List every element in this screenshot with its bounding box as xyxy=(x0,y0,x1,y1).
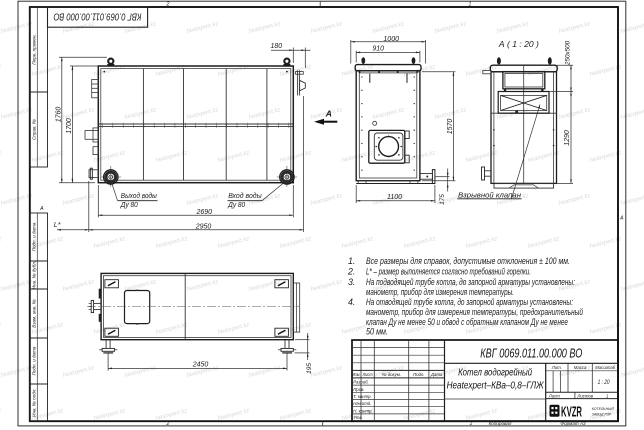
svg-text:Масштаб: Масштаб xyxy=(595,365,616,370)
svg-text:heatxpert.kz: heatxpert.kz xyxy=(620,279,644,293)
svg-text:heatxpert.kz: heatxpert.kz xyxy=(465,408,498,422)
svg-text:heatxpert.kz: heatxpert.kz xyxy=(310,21,343,35)
svg-text:Heatexpert–КВа–0,8–ГЛЖ: Heatexpert–КВа–0,8–ГЛЖ xyxy=(447,381,545,392)
svg-text:heatxpert.kz: heatxpert.kz xyxy=(496,107,529,121)
svg-text:heatxpert.kz: heatxpert.kz xyxy=(310,279,343,293)
svg-text:А: А xyxy=(619,216,624,222)
svg-text:heatxpert.kz: heatxpert.kz xyxy=(248,279,281,293)
svg-text:2690: 2690 xyxy=(196,209,213,216)
svg-text:heatxpert.kz: heatxpert.kz xyxy=(155,236,188,250)
svg-text:Выход воды: Выход воды xyxy=(121,192,158,200)
svg-text:1: 1 xyxy=(470,421,473,427)
svg-text:heatxpert.kz: heatxpert.kz xyxy=(465,236,498,250)
svg-text:heatxpert.kz: heatxpert.kz xyxy=(0,279,33,293)
svg-text:heatxpert.kz: heatxpert.kz xyxy=(279,408,312,422)
svg-text:Изм.: Изм. xyxy=(353,372,361,377)
svg-text:А: А xyxy=(39,206,44,212)
svg-text:heatxpert.kz: heatxpert.kz xyxy=(0,193,33,207)
svg-text:heatxpert.kz: heatxpert.kz xyxy=(186,279,219,293)
svg-text:2450: 2450 xyxy=(192,361,209,368)
svg-text:1000: 1000 xyxy=(383,36,399,43)
svg-text:heatxpert.kz: heatxpert.kz xyxy=(0,322,2,336)
svg-text:Все размеры для справок, допус: Все размеры для справок, допустимые откл… xyxy=(366,256,570,266)
svg-text:2.: 2. xyxy=(347,267,355,277)
svg-text:heatxpert.kz: heatxpert.kz xyxy=(217,150,250,164)
svg-text:KVZR: KVZR xyxy=(561,405,582,421)
svg-text:heatxpert.kz: heatxpert.kz xyxy=(434,21,467,35)
svg-text:Взрывной клапан: Взрывной клапан xyxy=(458,191,521,199)
svg-text:heatxpert.kz: heatxpert.kz xyxy=(186,107,219,121)
svg-text:1.: 1. xyxy=(348,256,355,266)
svg-text:heatxpert.kz: heatxpert.kz xyxy=(403,408,436,422)
svg-text:heatxpert.kz: heatxpert.kz xyxy=(558,193,591,207)
svg-text:heatxpert.kz: heatxpert.kz xyxy=(155,322,188,336)
svg-text:Подп. и дата: Подп. и дата xyxy=(32,346,37,375)
svg-text:heatxpert.kz: heatxpert.kz xyxy=(217,236,250,250)
svg-text:heatxpert.kz: heatxpert.kz xyxy=(93,408,126,422)
svg-text:Ду 80: Ду 80 xyxy=(227,202,245,209)
svg-text:манометр, прибор для измерения: манометр, прибор для измерения температу… xyxy=(366,287,514,297)
svg-text:L* – размер выполняется соглас: L* – размер выполняется согласно требова… xyxy=(366,267,531,277)
svg-text:heatxpert.kz: heatxpert.kz xyxy=(248,21,281,35)
svg-text:2: 2 xyxy=(166,421,170,427)
svg-text:Подп. и дата: Подп. и дата xyxy=(32,222,37,251)
svg-text:heatxpert.kz: heatxpert.kz xyxy=(279,150,312,164)
svg-text:Взам. инв. №: Взам. инв. № xyxy=(32,299,37,327)
svg-text:heatxpert.kz: heatxpert.kz xyxy=(341,236,374,250)
svg-text:195: 195 xyxy=(306,363,313,374)
svg-text:Утв.: Утв. xyxy=(353,415,363,420)
svg-text:Подп.: Подп. xyxy=(413,372,424,377)
svg-text:Перв. примен.: Перв. примен. xyxy=(32,34,37,65)
svg-text:heatxpert.kz: heatxpert.kz xyxy=(93,236,126,250)
svg-text:910: 910 xyxy=(372,46,384,53)
svg-text:4.: 4. xyxy=(348,297,355,307)
svg-text:Лист: Лист xyxy=(362,372,373,377)
svg-text:heatxpert.kz: heatxpert.kz xyxy=(124,107,157,121)
svg-text:heatxpert.kz: heatxpert.kz xyxy=(248,365,281,379)
svg-text:2950: 2950 xyxy=(195,223,212,230)
svg-text:50 мм.: 50 мм. xyxy=(366,327,388,337)
svg-text:heatxpert.kz: heatxpert.kz xyxy=(465,150,498,164)
svg-text:1: 1 xyxy=(606,393,609,398)
svg-text:180: 180 xyxy=(270,43,282,50)
svg-text:heatxpert.kz: heatxpert.kz xyxy=(527,150,560,164)
svg-text:heatxpert.kz: heatxpert.kz xyxy=(0,365,33,379)
svg-text:А: А xyxy=(325,109,332,119)
svg-text:КОТЕЛЬНЫЙ: КОТЕЛЬНЫЙ xyxy=(592,407,615,411)
svg-text:250х500: 250х500 xyxy=(565,40,572,66)
svg-text:heatxpert.kz: heatxpert.kz xyxy=(155,408,188,422)
svg-text:Формат А3: Формат А3 xyxy=(560,421,586,426)
svg-text:1100: 1100 xyxy=(387,194,402,201)
svg-text:На подводящей трубе котла, до: На подводящей трубе котла, до запорной а… xyxy=(366,277,575,287)
svg-text:На отводящей трубе котла, до з: На отводящей трубе котла, до запорной ар… xyxy=(366,297,573,307)
svg-text:1700: 1700 xyxy=(66,118,73,134)
svg-text:heatxpert.kz: heatxpert.kz xyxy=(62,365,95,379)
svg-text:heatxpert.kz: heatxpert.kz xyxy=(620,107,644,121)
svg-text:heatxpert.kz: heatxpert.kz xyxy=(620,365,644,379)
svg-text:1 : 20: 1 : 20 xyxy=(598,379,610,386)
svg-text:3.: 3. xyxy=(348,277,355,287)
svg-text:heatxpert.kz: heatxpert.kz xyxy=(279,322,312,336)
svg-text:Ду 80: Ду 80 xyxy=(120,202,138,209)
svg-text:А ( 1 : 20 ): А ( 1 : 20 ) xyxy=(498,39,539,49)
svg-text:heatxpert.kz: heatxpert.kz xyxy=(62,193,95,207)
svg-text:heatxpert.kz: heatxpert.kz xyxy=(620,193,644,207)
svg-text:heatxpert.kz: heatxpert.kz xyxy=(0,107,33,121)
svg-text:heatxpert.kz: heatxpert.kz xyxy=(310,193,343,207)
svg-text:Дата: Дата xyxy=(430,372,443,377)
svg-text:Разраб.: Разраб. xyxy=(353,380,369,385)
svg-text:175: 175 xyxy=(439,194,446,205)
svg-text:Копировал: Копировал xyxy=(489,421,512,426)
svg-text:1290: 1290 xyxy=(564,130,571,146)
svg-text:heatxpert.kz: heatxpert.kz xyxy=(403,236,436,250)
svg-text:heatxpert.kz: heatxpert.kz xyxy=(372,107,405,121)
svg-text:heatxpert.kz: heatxpert.kz xyxy=(0,64,2,78)
svg-text:ЗАВОД РЗР: ЗАВОД РЗР xyxy=(592,412,612,416)
svg-text:Справ. №: Справ. № xyxy=(32,119,37,140)
svg-text:heatxpert.kz: heatxpert.kz xyxy=(465,64,498,78)
svg-text:Нач.отд.: Нач.отд. xyxy=(353,401,371,406)
svg-text:1760: 1760 xyxy=(56,107,63,123)
svg-text:№ докум.: № докум. xyxy=(382,372,401,377)
svg-text:heatxpert.kz: heatxpert.kz xyxy=(62,279,95,293)
svg-text:heatxpert.kz: heatxpert.kz xyxy=(217,408,250,422)
svg-text:heatxpert.kz: heatxpert.kz xyxy=(310,365,343,379)
svg-text:heatxpert.kz: heatxpert.kz xyxy=(496,21,529,35)
svg-text:heatxpert.kz: heatxpert.kz xyxy=(527,236,560,250)
svg-text:манометр, прибор для измерения: манометр, прибор для измерения температу… xyxy=(366,307,583,317)
svg-text:1570: 1570 xyxy=(447,119,454,135)
svg-text:Т. контр.: Т. контр. xyxy=(353,394,372,399)
svg-text:heatxpert.kz: heatxpert.kz xyxy=(372,21,405,35)
svg-text:Н. контр.: Н. контр. xyxy=(353,408,372,413)
svg-text:Лист: Лист xyxy=(548,393,560,398)
svg-text:КВГ 0069.011.00.000 ВО: КВГ 0069.011.00.000 ВО xyxy=(480,346,582,361)
svg-text:heatxpert.kz: heatxpert.kz xyxy=(620,21,644,35)
svg-text:2: 2 xyxy=(166,2,170,8)
svg-text:heatxpert.kz: heatxpert.kz xyxy=(186,193,219,207)
svg-text:heatxpert.kz: heatxpert.kz xyxy=(217,322,250,336)
svg-text:heatxpert.kz: heatxpert.kz xyxy=(124,365,157,379)
svg-text:Масса: Масса xyxy=(574,365,587,370)
svg-text:Инв. № дубл.: Инв. № дубл. xyxy=(32,261,37,289)
svg-text:1: 1 xyxy=(469,2,472,8)
svg-text:heatxpert.kz: heatxpert.kz xyxy=(558,21,591,35)
svg-text:Инв. № подл.: Инв. № подл. xyxy=(32,388,37,417)
svg-text:Котел водогрейный: Котел водогрейный xyxy=(458,368,532,379)
svg-text:Вход воды: Вход воды xyxy=(228,192,262,200)
svg-text:heatxpert.kz: heatxpert.kz xyxy=(0,408,2,422)
svg-text:heatxpert.kz: heatxpert.kz xyxy=(186,21,219,35)
svg-text:heatxpert.kz: heatxpert.kz xyxy=(248,107,281,121)
svg-text:heatxpert.kz: heatxpert.kz xyxy=(558,107,591,121)
svg-text:КВГ 0.069.011.00.000 ВО: КВГ 0.069.011.00.000 ВО xyxy=(54,11,142,23)
svg-text:heatxpert.kz: heatxpert.kz xyxy=(0,150,2,164)
svg-text:heatxpert.kz: heatxpert.kz xyxy=(0,21,33,35)
svg-text:Листов: Листов xyxy=(576,393,593,398)
svg-text:Пров.: Пров. xyxy=(353,387,364,392)
svg-text:heatxpert.kz: heatxpert.kz xyxy=(0,236,2,250)
svg-text:L*: L* xyxy=(54,222,61,229)
svg-text:клапан Ду не менее 50 и обвод: клапан Ду не менее 50 и обвод с обратным… xyxy=(366,317,568,327)
svg-text:heatxpert.kz: heatxpert.kz xyxy=(279,236,312,250)
svg-text:Лит.: Лит. xyxy=(551,365,562,370)
